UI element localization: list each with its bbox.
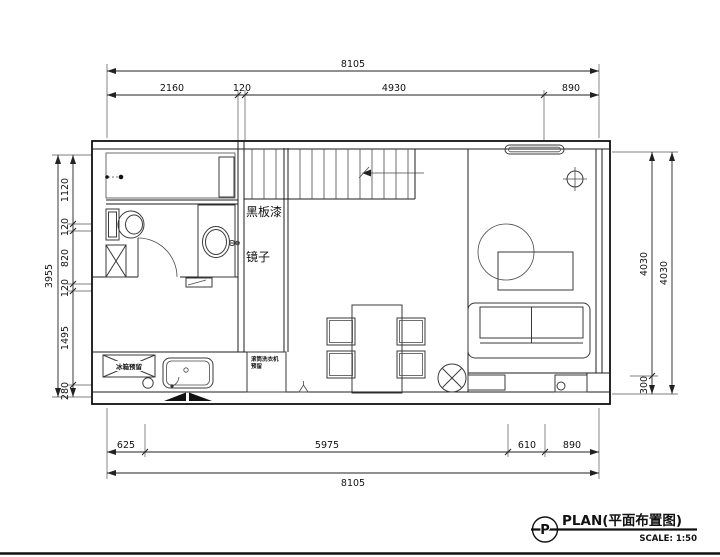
dining-table — [352, 305, 402, 393]
vanity-washbasin — [198, 205, 239, 277]
washer-reserved-box: 滚筒洗衣机 预留 — [247, 352, 286, 392]
plan-svg: 8105 2160 120 4930 890 625 5975 610 890 … — [0, 0, 720, 557]
door-threshold — [186, 278, 212, 287]
balcony-cabinet — [219, 157, 234, 197]
dim-label-left-total: 3955 — [44, 264, 55, 288]
dimension-top: 8105 2160 120 4930 890 — [107, 59, 599, 141]
bathroom — [105, 157, 239, 287]
dim-label-top-seg-3: 890 — [562, 83, 580, 94]
dim-label-top-seg-0: 2160 — [160, 83, 184, 94]
dining-chair — [397, 351, 425, 378]
drawing-scale: SCALE: 1:50 — [639, 534, 697, 544]
walls — [92, 141, 610, 404]
stair-direction-arrow — [359, 167, 424, 178]
drawing-title: PLAN(平面布置图) — [562, 512, 682, 529]
label-washer-2: 预留 — [251, 362, 263, 370]
stool-circle — [143, 378, 153, 388]
dimension-bottom: 625 5975 610 890 8105 — [107, 408, 599, 489]
dim-label-top-seg-2: 4930 — [382, 83, 406, 94]
dim-label-left-seg-0: 1120 — [60, 178, 71, 202]
callout-letter: P — [540, 523, 550, 538]
kitchen-sink — [163, 358, 213, 388]
dining-area — [299, 305, 466, 393]
dim-label-right-inner-1: 300 — [639, 376, 650, 394]
dim-label-bottom-seg-1: 5975 — [315, 440, 339, 451]
dining-chair — [327, 351, 355, 378]
label-mirror: 镜子 — [246, 249, 270, 264]
dim-label-bottom-seg-2: 610 — [518, 440, 536, 451]
dim-label-left-seg-2: 820 — [60, 249, 71, 267]
label-blackboard-paint: 黑板漆 — [246, 205, 282, 219]
dim-label-top-seg-1: 120 — [233, 83, 251, 94]
dim-label-left-seg-3: 120 — [60, 279, 71, 297]
dim-label-right-outer: 4030 — [659, 261, 670, 285]
dim-label-right-inner-0: 4030 — [639, 252, 650, 276]
sofa — [468, 303, 590, 358]
dim-label-left-seg-5: 280 — [60, 382, 71, 400]
dim-label-bottom-total: 8105 — [341, 478, 365, 489]
label-fridge-reserved: 冰箱预留 — [116, 362, 143, 371]
dim-label-bottom-seg-0: 625 — [117, 440, 135, 451]
living-room — [468, 145, 590, 392]
level-marker — [299, 381, 308, 392]
toilet — [106, 209, 144, 240]
light-symbol — [563, 167, 587, 191]
label-washer-1: 滚筒洗衣机 — [251, 355, 279, 363]
outer-wall — [92, 141, 610, 404]
coffee-table — [498, 252, 573, 290]
laundry-balcony — [106, 153, 235, 198]
floor-plan-drawing: 8105 2160 120 4930 890 625 5975 610 890 … — [0, 0, 720, 557]
dimension-left: 1120 120 820 120 1495 280 3955 — [44, 155, 92, 400]
dim-label-top-total: 8105 — [341, 59, 365, 70]
title-callout: P PLAN(平面布置图) SCALE: 1:50 — [531, 512, 697, 544]
dim-label-left-seg-1: 120 — [60, 218, 71, 236]
dim-label-left-seg-4: 1495 — [60, 326, 71, 350]
staircase — [244, 149, 424, 199]
dining-chair — [327, 318, 355, 345]
dim-label-bottom-seg-3: 890 — [563, 440, 581, 451]
step-block — [468, 375, 505, 390]
fridge-reserved-box: 冰箱预留 — [103, 355, 155, 377]
dimension-right: 4030 300 4030 — [612, 152, 678, 394]
shower-floor-drain — [106, 245, 126, 277]
fan-symbol — [438, 364, 466, 392]
dining-chair — [397, 318, 425, 345]
drying-rod — [105, 175, 123, 180]
drain-block — [555, 375, 587, 392]
kitchen: 冰箱预留 滚筒洗衣机 预留 — [92, 352, 286, 401]
entry-arrow-mark — [164, 393, 212, 402]
bathroom-door — [138, 238, 177, 277]
